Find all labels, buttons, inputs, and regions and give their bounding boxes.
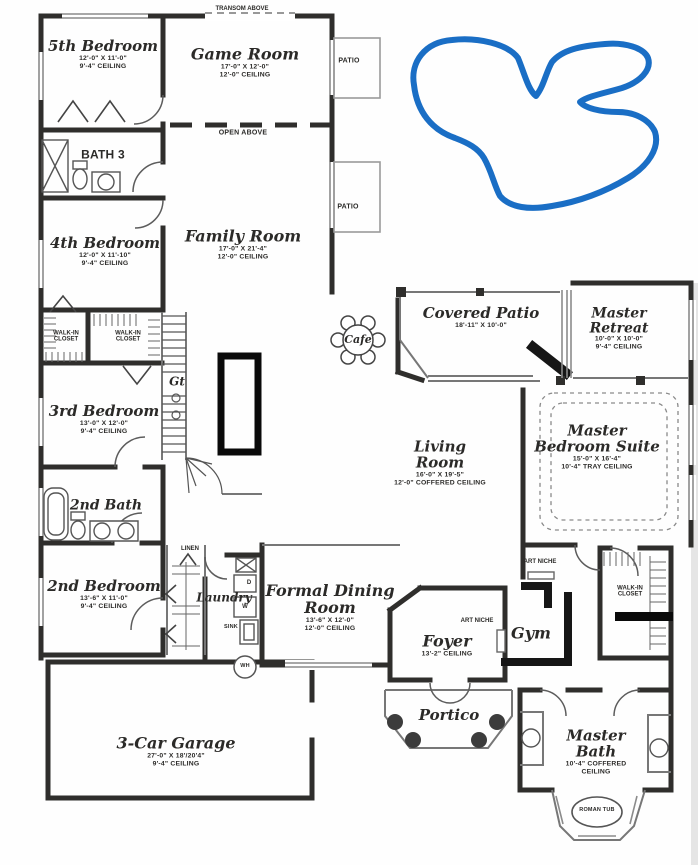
bath3-sink-icon xyxy=(92,172,120,192)
room-label-portico: Portico xyxy=(419,708,480,724)
room-label-master-retreat: Master Retreat 10'-0" X 10'-0" 9'-4" CEI… xyxy=(576,306,662,351)
black-marker-bar xyxy=(615,612,673,621)
room-label-bath3: BATH 3 xyxy=(81,149,125,162)
wh-label: WH xyxy=(240,664,250,670)
dryer-label: D xyxy=(247,580,251,586)
patio-label-b: PATIO xyxy=(337,203,358,210)
transom-note: TRANSOM ABOVE xyxy=(215,6,268,12)
room-label-laundry: Laundry xyxy=(196,592,251,605)
sink-label: SINK xyxy=(224,625,238,631)
room-label-bath2: 2nd Bath xyxy=(70,499,142,514)
roman-tub-label: ROMAN TUB xyxy=(577,808,617,814)
room-label-living-room: Living Room 16'-0" X 19'-5" 12'-0" COFFE… xyxy=(394,439,486,487)
room-label-master-bath: Master Bath 10'-4" COFFERED CEILING xyxy=(551,728,641,776)
floor-plan: TRANSOM ABOVE 5th Bedroom 12'-0" X 11'-0… xyxy=(0,0,698,865)
room-label-bedroom2: 2nd Bedroom 13'-6" X 11'-0" 9'-4" CEILIN… xyxy=(47,579,161,611)
room-label-gym: Gym xyxy=(511,626,551,643)
room-label-formal-dining: Formal Dining Room 13'-6" X 12'-0" 12'-0… xyxy=(255,583,405,633)
room-label-game-room: Game Room 17'-0" X 12'-0" 12'-0" CEILING xyxy=(191,47,299,80)
bath3-shower-icon xyxy=(42,140,68,192)
art-niche-label-a: ART NICHE xyxy=(523,559,557,565)
bath3-toilet-icon xyxy=(73,161,87,189)
room-label-foyer: Foyer 13'-2" CEILING xyxy=(422,634,473,659)
patio-label-a: PATIO xyxy=(338,57,359,64)
bath2-sinks-icon xyxy=(90,521,138,541)
room-label-family-room: Family Room 17'-0" X 21'-4" 12'-0" CEILI… xyxy=(185,229,301,262)
stair-text-label: Gt xyxy=(169,376,185,389)
bath2-toilet-icon xyxy=(71,512,85,539)
thick-wall-accents xyxy=(505,347,568,662)
room-label-bedroom5: 5th Bedroom 12'-0" X 11'-0" 9'-4" CEILIN… xyxy=(48,39,158,71)
black-marker-rectangle xyxy=(221,356,258,452)
walkin-closet-label-a: WALK-IN CLOSET xyxy=(45,331,87,344)
room-label-master-suite: Master Bedroom Suite 15'-0" X 16'-4" 10'… xyxy=(532,423,662,471)
blue-marker-loop xyxy=(413,39,656,208)
walkin-closet-label-master: WALK-IN CLOSET xyxy=(608,586,652,599)
room-label-garage: 3-Car Garage 27'-0" X 18'/20'4" 9'-4" CE… xyxy=(116,736,235,769)
open-above-note: OPEN ABOVE xyxy=(219,129,267,136)
room-label-bedroom4: 4th Bedroom 12'-0" X 11'-10" 9'-4" CEILI… xyxy=(50,236,160,268)
art-niche-label-b: ART NICHE xyxy=(460,618,494,624)
room-label-covered-patio: Covered Patio 18'-11" X 10'-0" xyxy=(423,306,540,330)
linen-label: LINEN xyxy=(181,546,199,552)
cafe-label: Cafe xyxy=(344,334,372,346)
walkin-closet-label-b: WALK-IN CLOSET xyxy=(107,331,149,344)
washer-label: W xyxy=(242,604,248,610)
room-label-bedroom3: 3rd Bedroom 13'-0" X 12'-0" 9'-4" CEILIN… xyxy=(49,404,160,436)
bath2-tub-icon xyxy=(44,488,68,540)
stairs xyxy=(162,316,222,494)
